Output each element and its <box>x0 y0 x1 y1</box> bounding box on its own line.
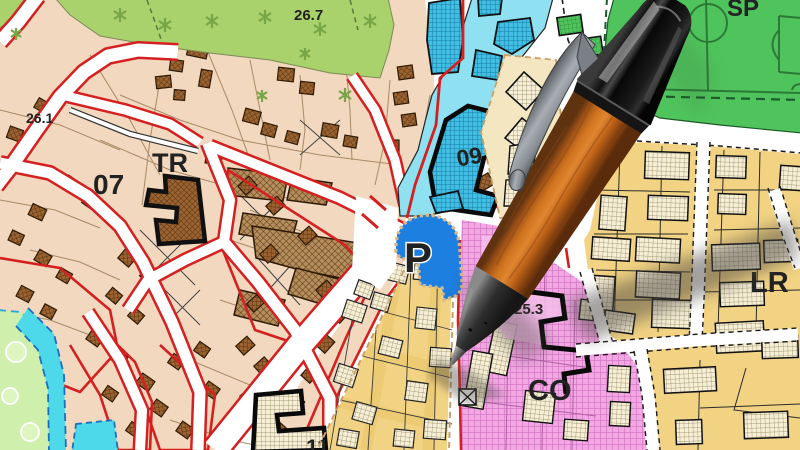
svg-text:09: 09 <box>454 142 484 172</box>
svg-text:26.1: 26.1 <box>26 110 53 126</box>
svg-text:11: 11 <box>306 435 329 450</box>
svg-text:SP: SP <box>727 0 759 22</box>
svg-text:CO: CO <box>528 375 572 407</box>
svg-text:07: 07 <box>93 169 124 200</box>
svg-text:26.7: 26.7 <box>294 7 323 24</box>
svg-text:TR: TR <box>152 148 188 178</box>
svg-text:P: P <box>404 234 432 281</box>
